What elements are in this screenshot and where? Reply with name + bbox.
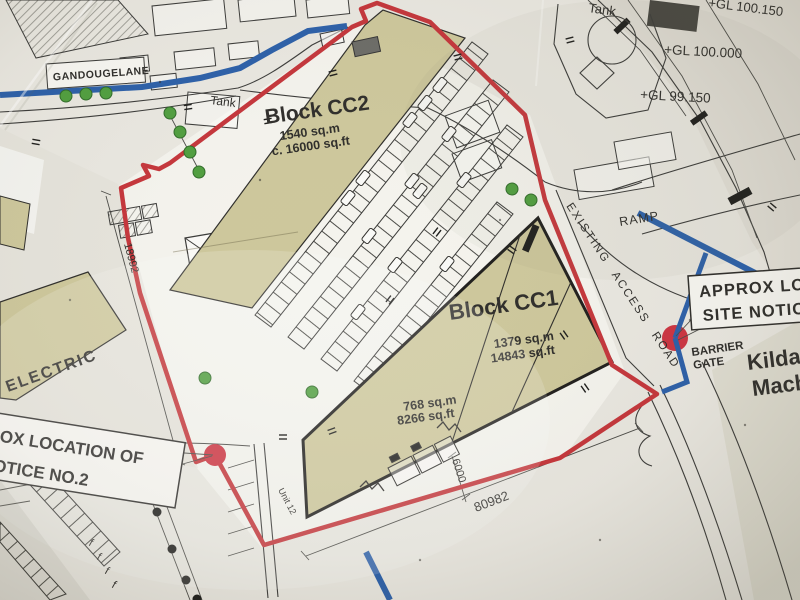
- photo-effects: [0, 0, 800, 600]
- vignette: [0, 0, 800, 600]
- site-plan-photo: f f f f GANDOUGELANE Tank Tank +GL 100.0…: [0, 0, 800, 600]
- site-plan-canvas: f f f f GANDOUGELANE Tank Tank +GL 100.0…: [0, 0, 800, 600]
